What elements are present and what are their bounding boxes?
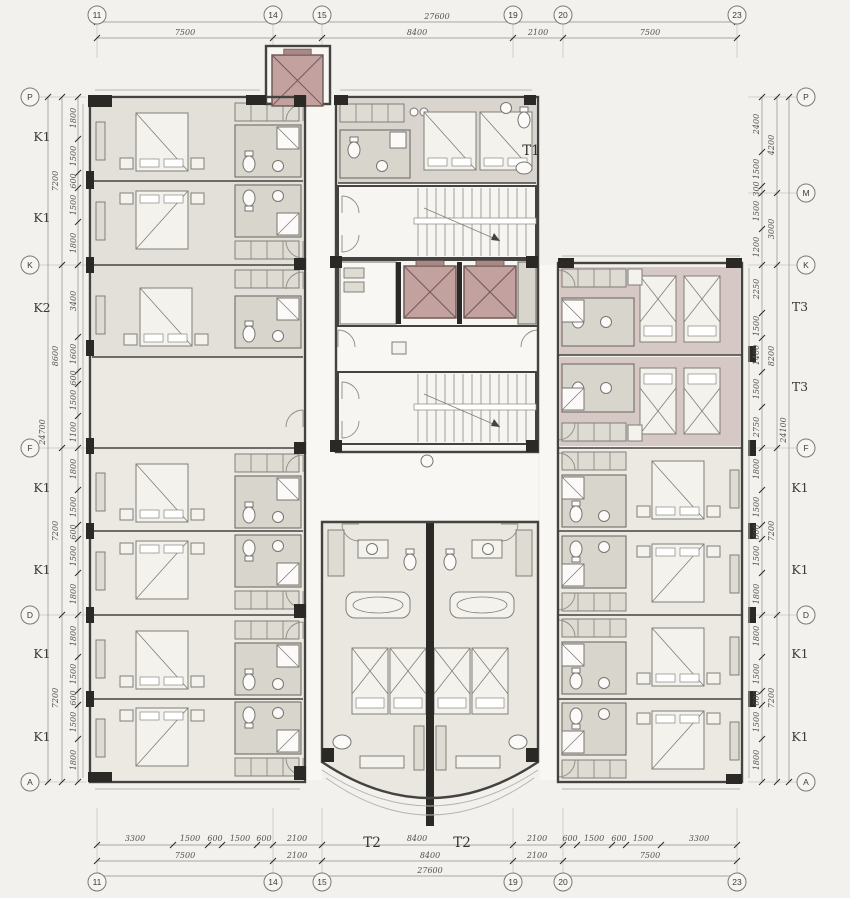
dim-label: 8200 [767,346,776,366]
dim-label: 1800 [752,459,761,479]
dim-label: 1500 [69,546,78,566]
dim-label: 2750 [752,417,761,438]
room-label-K1: K1 [33,562,50,577]
grid-marker-label: 11 [93,877,102,887]
grid-marker-label: 23 [732,877,742,887]
dim-label: 4200 [767,135,776,156]
grid-marker-label: F [27,443,32,453]
floor-plan-drawing: 111415192023111415192023PKFDAPMKFDA 2760… [0,0,850,898]
grid-marker-M: M [797,184,815,202]
grid-marker-14: 14 [264,6,282,24]
dim-label: 2400 [752,114,761,135]
grid-marker-23: 23 [728,6,746,24]
dim-label: 1500 [69,195,78,215]
grid-marker-label: K [27,260,33,270]
dim-label: 1500 [752,712,761,732]
grid-marker-label: 11 [93,10,102,20]
dim-label: 1500 [69,712,78,732]
elevator-icon [404,260,456,318]
dim-label: 600 [611,834,626,843]
room-label-K2: K2 [33,300,50,315]
grid-marker-label: 20 [558,10,568,20]
dim-label: 2100 [286,851,307,860]
grid-marker-A: A [21,773,39,791]
grid-marker-20: 20 [554,6,572,24]
dim-label: 2100 [526,834,547,843]
grid-marker-F: F [21,439,39,457]
t2-party-wall [426,522,434,826]
dim-label: 24700 [38,419,47,445]
dim-label: 1500 [752,316,761,336]
dim-label: 2100 [286,834,307,843]
room-label-K1: K1 [791,480,808,495]
room-label-T2: T2 [453,835,471,851]
grid-marker-label: 14 [268,10,278,20]
dim-label: 1500 [752,379,761,399]
grid-marker-P: P [21,88,39,106]
dim-label: 1500 [752,497,761,517]
dim-label: 1800 [69,233,78,253]
elevator-icon [464,260,516,318]
dim-label: 3300 [689,834,709,843]
grid-marker-label: 15 [317,10,327,20]
grid-marker-label: K [803,260,809,270]
room-label-K1: K1 [791,646,808,661]
room-label-K1: K1 [33,646,50,661]
dim-label: 2250 [752,279,761,300]
room-label-K1: K1 [33,480,50,495]
dim-label: 1500 [752,201,761,221]
grid-marker-label: D [27,610,33,620]
grid-marker-20: 20 [554,873,572,891]
room-label-K1: K1 [33,729,50,744]
grid-marker-label: A [803,777,809,787]
grid-marker-K: K [21,256,39,274]
dim-label: 600 [256,834,271,843]
dim-label: 1500 [633,834,653,843]
dim-label: 1500 [230,834,250,843]
grid-marker-D: D [797,606,815,624]
dim-label: 1800 [69,626,78,646]
room-label-K1: K1 [791,562,808,577]
dim-label: 8400 [420,851,440,860]
stair-lower [338,372,536,444]
grid-marker-15: 15 [313,873,331,891]
dim-label: 1500 [180,834,200,843]
dim-label: 1100 [69,422,78,442]
lobby-feature [421,455,433,467]
room-label-T3: T3 [792,299,808,314]
dim-label: 3400 [69,291,78,311]
grid-marker-D: D [21,606,39,624]
dim-label: 600 [562,834,577,843]
dim-label: 1500 [69,497,78,517]
grid-marker-label: 14 [268,877,278,887]
room-label-T1: T1 [522,143,540,159]
room-label-T3: T3 [792,379,808,394]
dim-label: 3300 [125,834,145,843]
dim-label: 1500 [69,146,78,166]
grid-marker-23: 23 [728,873,746,891]
grid-marker-K: K [797,256,815,274]
dim-label: 600 [69,524,78,539]
dim-label: 27600 [416,866,442,875]
stair-upper [338,186,536,258]
grid-marker-label: 20 [558,877,568,887]
dim-label: 7500 [640,851,660,860]
dim-label: 1500 [69,664,78,684]
dim-label: 1800 [752,626,761,646]
dim-label: 1400 [752,345,761,365]
grid-marker-11: 11 [88,873,106,891]
grid-marker-label: P [27,92,33,102]
grid-marker-F: F [797,439,815,457]
dim-label: 600 [69,370,78,385]
grid-marker-label: D [803,610,809,620]
dim-label: 1500 [752,546,761,566]
grid-marker-P: P [797,88,815,106]
room-label-T2: T2 [363,835,381,851]
grid-marker-19: 19 [504,6,522,24]
grid-marker-label: A [27,777,33,787]
dim-label: 1500 [584,834,604,843]
grid-marker-A: A [797,773,815,791]
grid-marker-label: P [803,92,809,102]
dim-label: 1800 [69,750,78,770]
grid-marker-label: M [802,188,809,198]
dim-label: 7200 [51,521,60,541]
grid-marker-14: 14 [264,873,282,891]
dim-label: 1800 [69,459,78,479]
dim-label: 1800 [752,584,761,604]
dim-label: 8400 [407,834,427,843]
dim-label: 7200 [51,688,60,708]
dim-label: 2100 [526,851,547,860]
room-label-K1: K1 [33,210,50,225]
dim-label: 2100 [527,28,548,37]
room-label-K1: K1 [791,729,808,744]
room-t1 [340,103,532,179]
dim-label: 1800 [752,750,761,770]
dim-label: 600 [69,173,78,188]
dim-label: 24100 [779,417,788,443]
grid-marker-15: 15 [313,6,331,24]
dim-label: 7200 [767,688,776,708]
grid-marker-label: 19 [508,10,518,20]
grid-marker-label: 23 [732,10,742,20]
dim-label: 600 [752,524,761,539]
grid-marker-label: 15 [317,877,327,887]
dim-label: 3000 [767,219,776,239]
dim-label: 600 [69,690,78,705]
dim-label: 1500 [752,159,761,179]
grid-marker-19: 19 [504,873,522,891]
dim-label: 1500 [752,664,761,684]
dim-label: 1600 [69,344,78,364]
grid-marker-11: 11 [88,6,106,24]
dim-label: 1800 [69,108,78,128]
dim-label: 7500 [175,851,195,860]
grid-marker-label: 19 [508,877,518,887]
dim-label: 27600 [423,12,449,21]
dim-label: 600 [207,834,222,843]
dim-label: 1800 [69,584,78,604]
floor-plan-canvas: 111415192023111415192023PKFDAPMKFDA 2760… [0,0,850,898]
dim-label: 8600 [51,346,60,366]
dim-label: 600 [752,690,761,705]
elevator-bank [338,260,538,326]
dim-label: 300 [752,181,761,196]
room-label-K1: K1 [33,129,50,144]
dim-label: 7500 [175,28,195,37]
dim-label: 1500 [69,390,78,410]
dim-label: 7200 [767,521,776,541]
dim-label: 1200 [752,237,761,257]
dim-label: 8400 [407,28,427,37]
dim-label: 7200 [51,171,60,191]
grid-marker-label: F [803,443,808,453]
dim-label: 7500 [640,28,660,37]
